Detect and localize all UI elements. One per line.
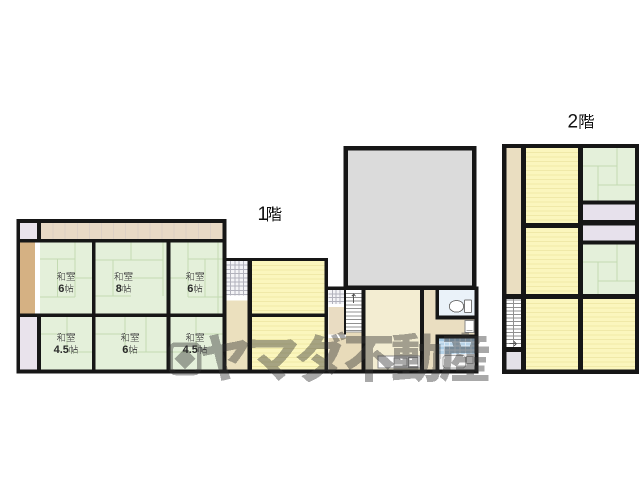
svg-text:1: 1 (258, 204, 269, 225)
svg-text:6: 6 (58, 283, 64, 295)
svg-text:6: 6 (187, 283, 193, 295)
svg-text:4.5: 4.5 (54, 344, 69, 356)
svg-text:2: 2 (568, 112, 579, 133)
svg-text:6: 6 (122, 344, 128, 356)
svg-text:8: 8 (116, 283, 122, 295)
